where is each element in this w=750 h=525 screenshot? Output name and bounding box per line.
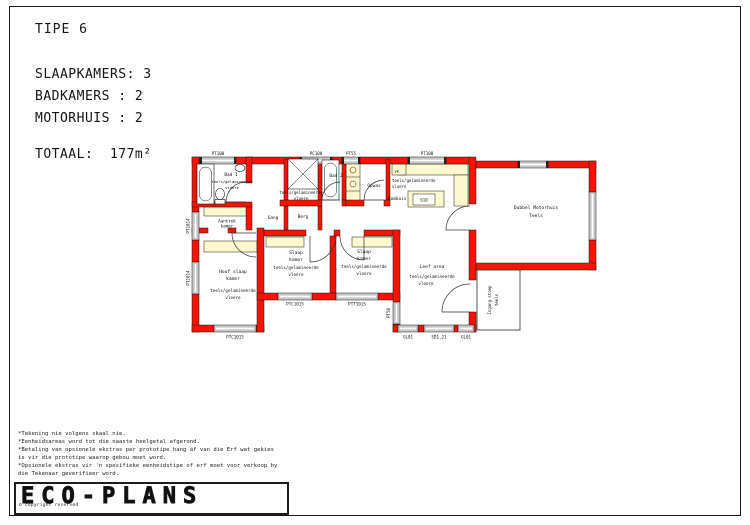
footnote-line: is vir die prototipe waarop gebou moet w… xyxy=(18,455,166,461)
floor-note: teels/gelamineerde xyxy=(279,190,323,195)
floor-note: vloere xyxy=(225,295,241,300)
room-label-aantrek: kamer xyxy=(221,224,234,229)
copyright-note: © copyright reserved xyxy=(19,503,78,508)
room-label-slaap2: kamer xyxy=(289,257,303,263)
room-label-leef: Leef area xyxy=(420,264,445,270)
logo-box: ECO-PLANS xyxy=(14,482,289,515)
footnote-line: *Betaling van opsionele ekstras per prot… xyxy=(18,447,274,453)
room-label-slaap3: Slaap xyxy=(357,249,371,255)
floor-note: teels/gelamineerde xyxy=(392,178,436,183)
footnotes: *Tekening nie volgens skaal nie. *Eenhei… xyxy=(18,431,277,478)
toilet-icon xyxy=(216,189,225,200)
stove-label: 610 xyxy=(420,198,428,203)
footnote-line: *Eenheidsareas word tot die naaste heelg… xyxy=(18,439,200,445)
window-label: PT55 xyxy=(346,151,357,156)
door-label: GL01 xyxy=(461,335,472,340)
room-label-berg: Berg xyxy=(298,214,309,220)
basin-icon xyxy=(235,165,245,172)
cupboard-slaap2 xyxy=(266,237,304,247)
window-label: PT100 xyxy=(421,151,434,156)
cupboard-slaap3 xyxy=(352,237,392,247)
floor-note: teels/gelamineerde xyxy=(409,274,455,279)
floor-note: vloere xyxy=(356,271,372,276)
floor-note: vloere xyxy=(418,281,434,286)
kitchen-counter-side xyxy=(454,175,468,206)
door-label: SD1.21 xyxy=(431,335,447,340)
window-label: PT1014 xyxy=(186,270,191,286)
plan-sheet: TIPE 6 SLAAPKAMERS: 3 BADKAMERS : 2 MOTO… xyxy=(0,0,750,525)
room-label-gang: Gang xyxy=(268,215,279,221)
floor-note: teels/gelamineerde xyxy=(210,288,256,293)
window-label: PT1014 xyxy=(186,218,191,234)
floor-note: vloere xyxy=(288,272,304,277)
cupboard-aantrek xyxy=(204,207,250,216)
opwas-units xyxy=(346,163,360,204)
room-label-stoep: teels xyxy=(494,293,499,306)
window-label: PT50 xyxy=(386,307,391,318)
window-label: PTC1015 xyxy=(286,302,304,307)
floor-note: vloere xyxy=(392,184,407,189)
window-label: PTT1015 xyxy=(348,302,366,307)
room-label-kombuis: Kombuis xyxy=(388,196,407,202)
window-label: PTC1015 xyxy=(226,335,244,340)
door-opwas xyxy=(364,180,384,200)
window-label: PT100 xyxy=(212,151,225,156)
window-label: PC100 xyxy=(310,151,323,156)
cupboard-hoofslaap xyxy=(204,241,257,252)
room-label-opwas: Opwas xyxy=(367,183,381,189)
floor-note: teels/gelamineerde xyxy=(341,264,387,269)
room-label-motorhuis: Dubbel Motorhuis xyxy=(514,205,558,211)
floor-note: vloere xyxy=(225,185,239,190)
room-label-motorhuis: Teels xyxy=(529,213,543,219)
door-label: GL01 xyxy=(403,335,414,340)
door-garage-kitchen xyxy=(446,206,470,230)
kitchen-counter-top xyxy=(398,164,468,175)
footnote-line: *Tekening nie volgens skaal nie. xyxy=(18,431,126,437)
footnote-line: *Opsionele ekstras vir 'n spesifieke een… xyxy=(18,463,277,469)
room-label-stoep: Ingang stoep xyxy=(487,285,492,314)
room-label-hoofslaap: kamer xyxy=(226,276,240,282)
door-front xyxy=(442,284,470,312)
floor-note: vloere xyxy=(294,196,309,201)
footnote-line: die Tekenaar geverifieer word. xyxy=(18,471,119,477)
room-label-bad1: Bad 1 xyxy=(224,172,238,178)
room-label-slaap2: Slaap xyxy=(289,250,303,256)
room-label-slaap3: kamer xyxy=(357,256,371,262)
room-label-hoofslaap: Hoof slaap xyxy=(219,269,247,275)
floor-note: teels/gelamineerde xyxy=(211,179,253,184)
room-label-bad2: Bad 2 xyxy=(329,173,343,179)
floor-note: teels/gelamineerde xyxy=(273,265,319,270)
